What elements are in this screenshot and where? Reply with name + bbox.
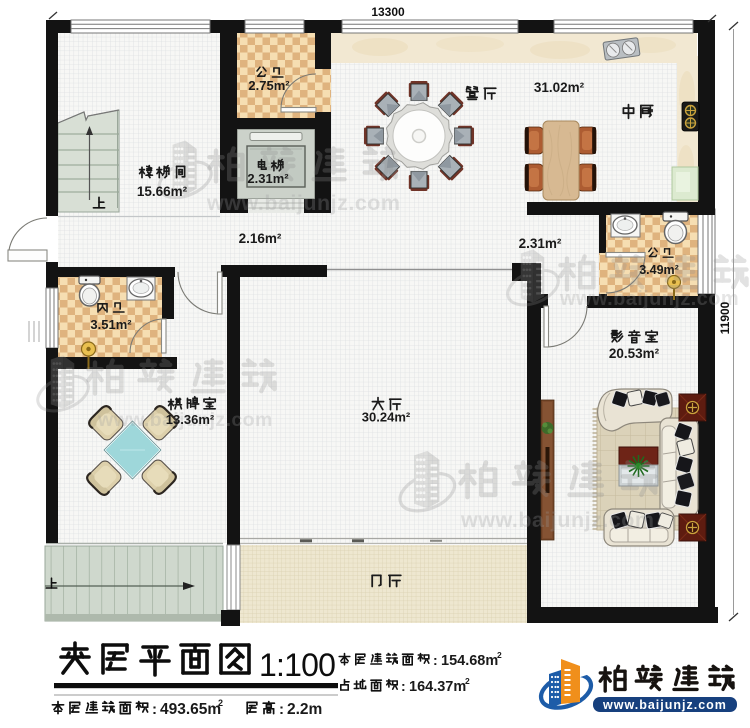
- svg-text::: :: [433, 652, 438, 668]
- svg-text:2.31m²: 2.31m²: [519, 236, 562, 251]
- svg-text:11900: 11900: [718, 301, 732, 334]
- svg-text:2.16m²: 2.16m²: [239, 231, 282, 246]
- svg-text:2: 2: [218, 698, 223, 708]
- svg-text:30.24m²: 30.24m²: [362, 410, 411, 425]
- svg-text:2: 2: [497, 650, 502, 660]
- svg-text:154.68m: 154.68m: [441, 653, 498, 669]
- svg-text:www.baijunjz.com: www.baijunjz.com: [602, 698, 727, 712]
- svg-text:www.baijunjz.com: www.baijunjz.com: [206, 191, 401, 215]
- svg-text:1:100: 1:100: [259, 647, 335, 683]
- svg-text:13300: 13300: [371, 5, 405, 19]
- svg-text:20.53m²: 20.53m²: [609, 346, 660, 361]
- svg-text:15.66m²: 15.66m²: [137, 184, 188, 199]
- svg-text:2.2m: 2.2m: [287, 701, 322, 718]
- svg-text:13.36m²: 13.36m²: [166, 412, 215, 427]
- svg-text:2.31m²: 2.31m²: [247, 171, 289, 186]
- svg-text:493.65m: 493.65m: [160, 701, 221, 718]
- svg-text:2.75m²: 2.75m²: [248, 78, 290, 93]
- svg-text:164.37m: 164.37m: [409, 679, 466, 695]
- svg-text:3.51m²: 3.51m²: [90, 317, 132, 332]
- svg-text::: :: [401, 678, 406, 694]
- svg-text:2: 2: [465, 676, 470, 686]
- svg-text::: :: [279, 701, 284, 718]
- svg-text:3.49m²: 3.49m²: [639, 263, 679, 277]
- svg-text:31.02m²: 31.02m²: [534, 80, 585, 95]
- svg-text:www.baijunjz.com: www.baijunjz.com: [460, 508, 655, 532]
- svg-text:www.baijunjz.com: www.baijunjz.com: [559, 288, 739, 310]
- svg-text::: :: [152, 701, 157, 718]
